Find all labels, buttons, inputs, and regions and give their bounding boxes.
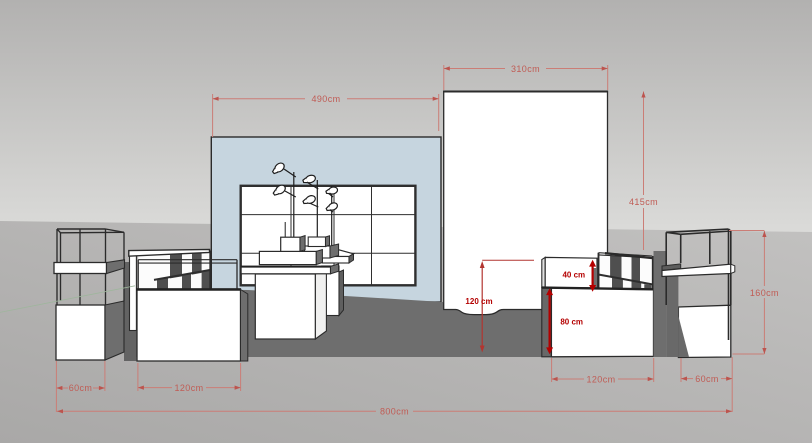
svg-text:800cm: 800cm — [380, 407, 409, 417]
svg-text:490cm: 490cm — [311, 94, 340, 104]
svg-text:60cm: 60cm — [69, 383, 93, 393]
svg-text:120cm: 120cm — [174, 383, 203, 393]
svg-text:80 cm: 80 cm — [560, 318, 583, 327]
svg-text:120 cm: 120 cm — [465, 297, 492, 306]
svg-text:310cm: 310cm — [511, 64, 540, 74]
svg-text:160cm: 160cm — [750, 288, 779, 298]
svg-text:60cm: 60cm — [695, 374, 719, 384]
svg-text:120cm: 120cm — [586, 375, 615, 385]
svg-text:40 cm: 40 cm — [562, 270, 585, 279]
svg-text:415cm: 415cm — [629, 197, 658, 207]
